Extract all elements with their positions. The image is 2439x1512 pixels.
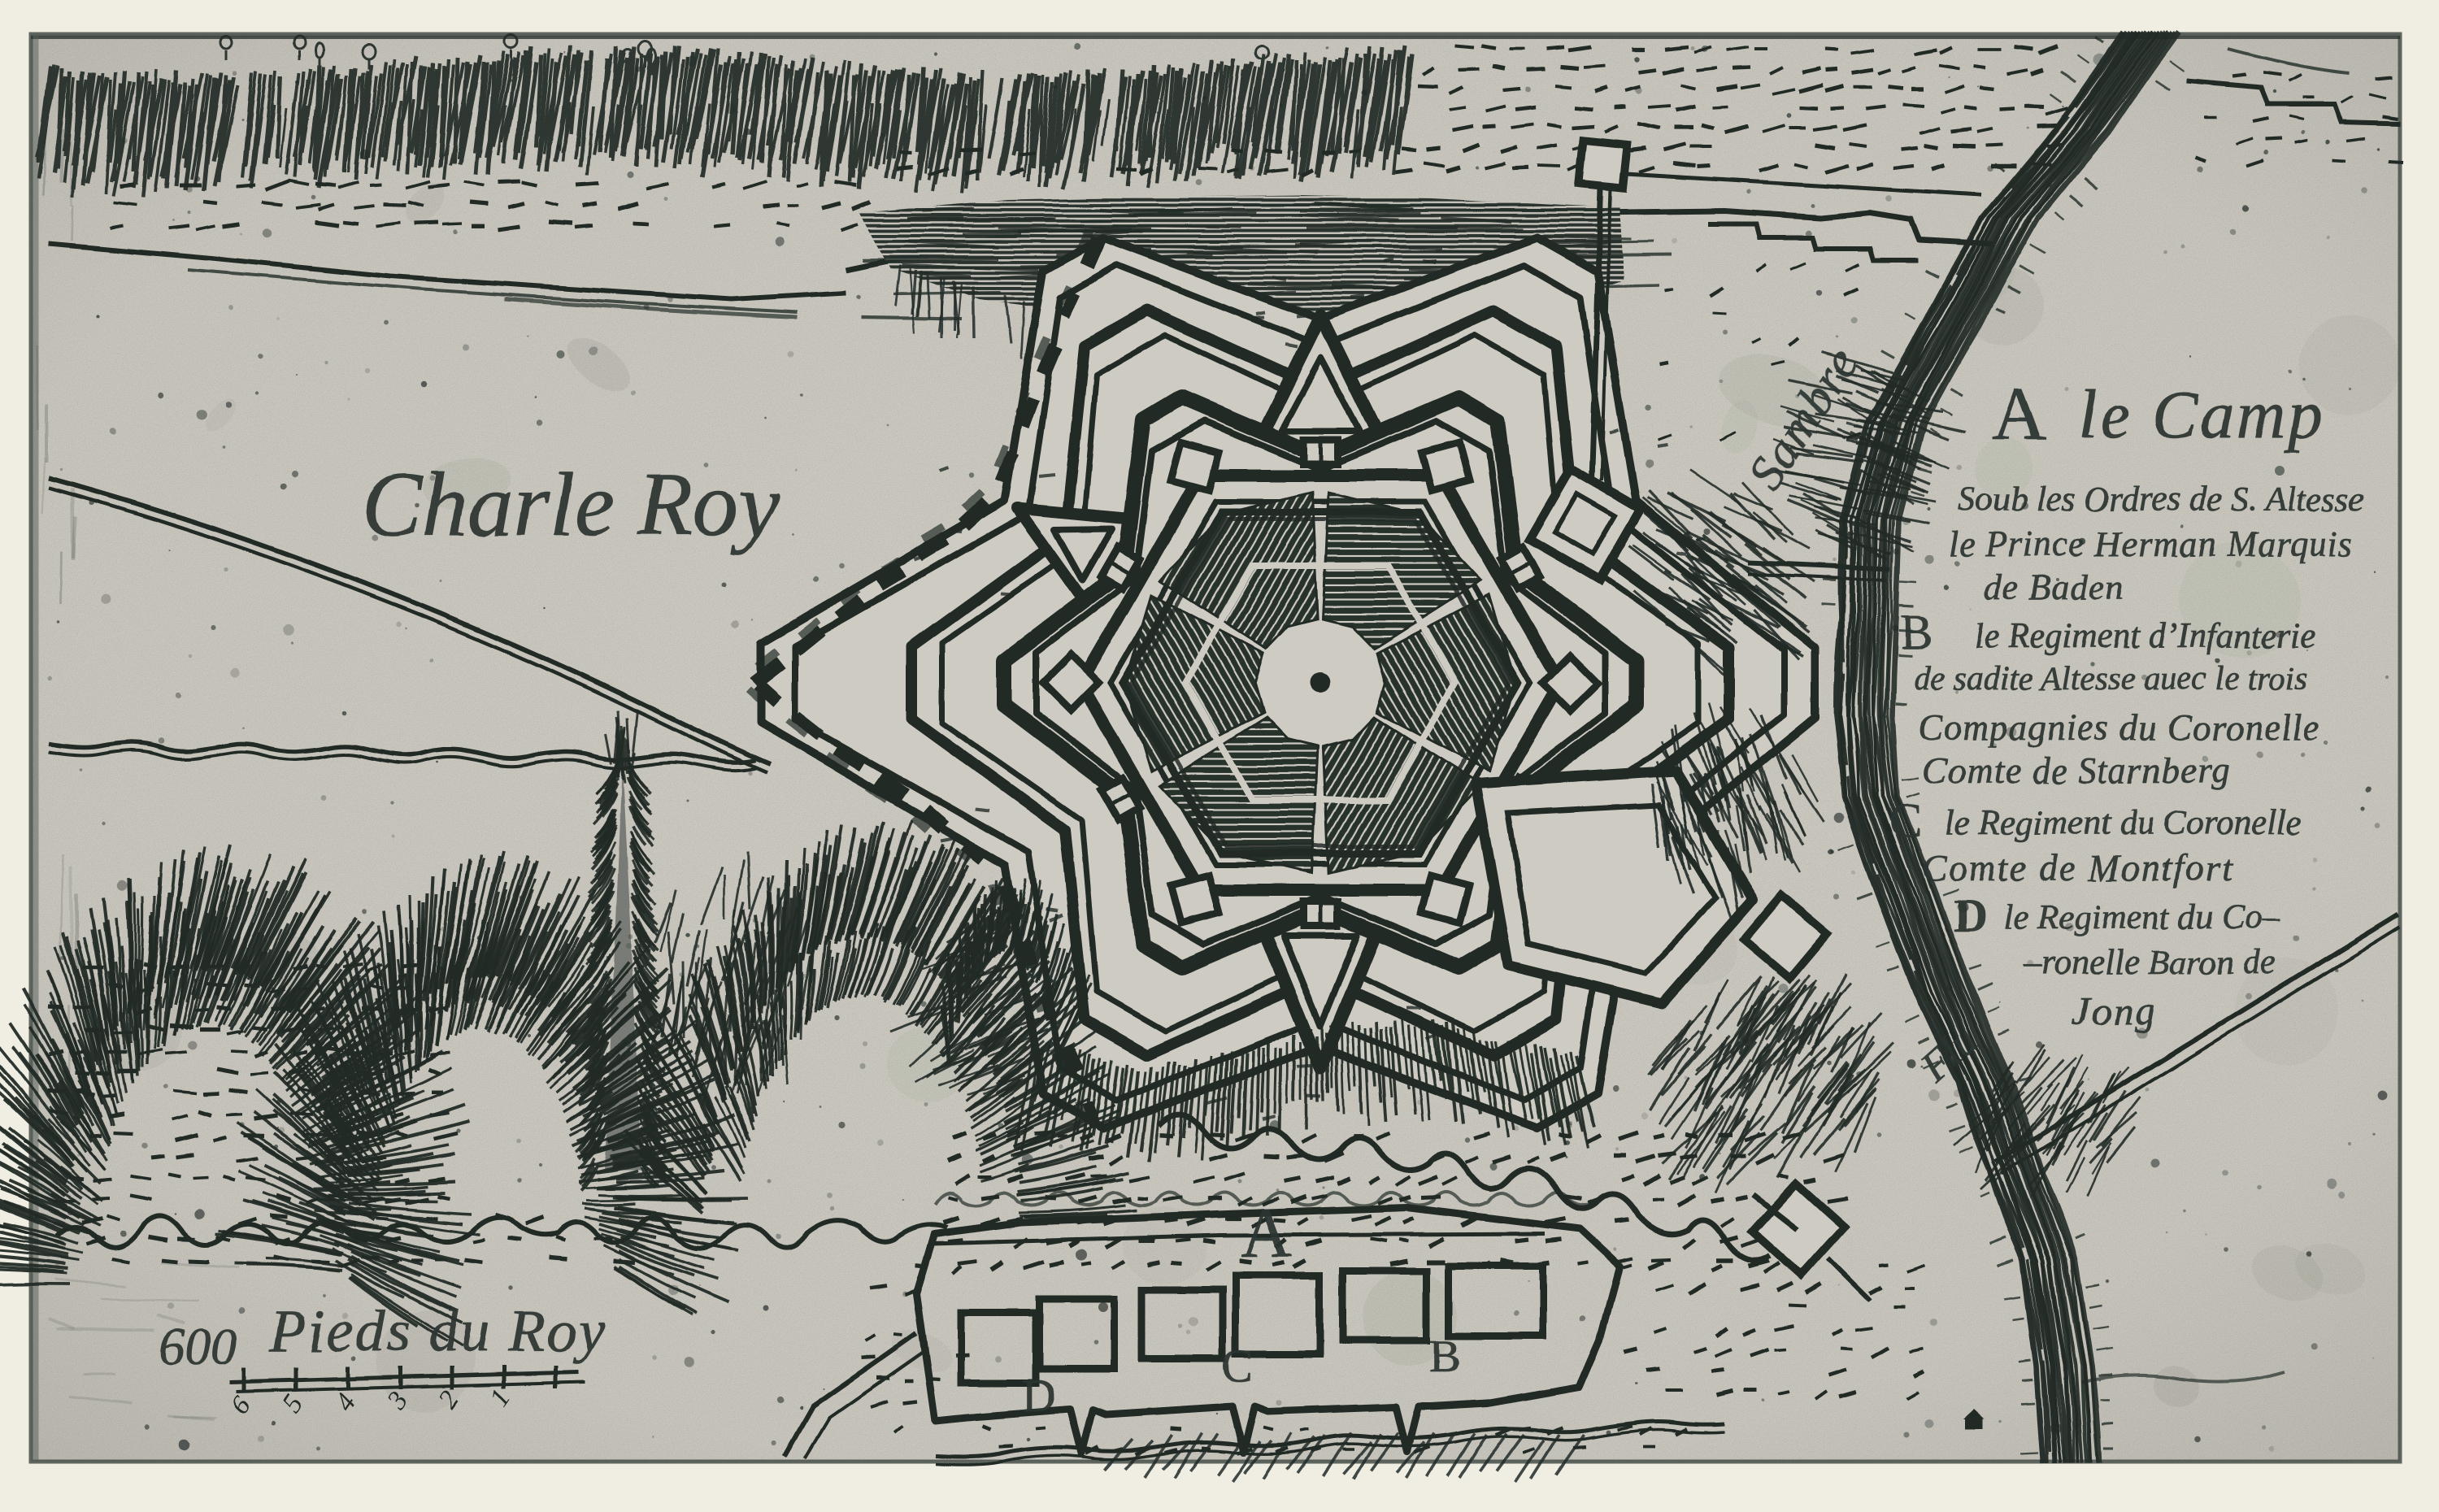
svg-text:C: C xyxy=(1889,794,1922,848)
svg-text:Comte de Montfort: Comte de Montfort xyxy=(1922,847,2234,889)
svg-text:Charle Roy: Charle Roy xyxy=(362,454,780,555)
svg-text:Comte de Starnberg: Comte de Starnberg xyxy=(1922,750,2230,791)
svg-text:le Regiment du Co–: le Regiment du Co– xyxy=(2003,898,2280,936)
svg-text:de sadite Altesse auec le troi: de sadite Altesse auec le trois xyxy=(1914,659,2307,697)
svg-text:le Prince Herman Marquis: le Prince Herman Marquis xyxy=(1948,524,2353,564)
svg-text:C: C xyxy=(1221,1340,1253,1393)
svg-text:le Regiment d’Infanterie: le Regiment d’Infanterie xyxy=(1974,617,2315,655)
svg-text:600: 600 xyxy=(159,1318,237,1375)
svg-text:de Baden: de Baden xyxy=(1984,567,2124,607)
svg-text:B: B xyxy=(1900,606,1933,659)
svg-text:D: D xyxy=(1022,1369,1056,1422)
svg-text:D: D xyxy=(1953,889,1987,942)
svg-text:Soub les Ordres de S. Altesse: Soub les Ordres de S. Altesse xyxy=(1958,480,2364,519)
svg-text:–ronelle Baron de: –ronelle Baron de xyxy=(2024,944,2276,982)
svg-text:B: B xyxy=(1429,1330,1461,1383)
svg-text:le Regiment du Coronelle: le Regiment du Coronelle xyxy=(1945,804,2302,842)
svg-text:A: A xyxy=(1992,371,2047,456)
svg-text:le Camp: le Camp xyxy=(2078,377,2324,453)
svg-text:Compagnies du Coronelle: Compagnies du Coronelle xyxy=(1919,707,2320,748)
svg-text:Jong: Jong xyxy=(2072,988,2157,1033)
svg-text:Pieds du Roy: Pieds du Roy xyxy=(269,1298,606,1365)
svg-text:A: A xyxy=(1241,1194,1293,1273)
